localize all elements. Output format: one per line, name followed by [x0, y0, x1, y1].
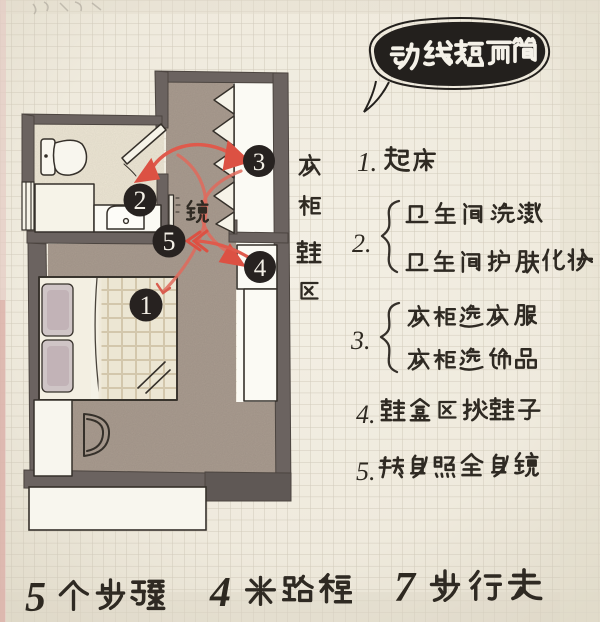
svg-text:4: 4: [254, 255, 267, 282]
svg-text:5.: 5.: [356, 457, 376, 486]
svg-text:1: 1: [140, 291, 153, 320]
svg-text:1.: 1.: [357, 147, 377, 177]
svg-text:5: 5: [163, 227, 176, 256]
svg-text:4.: 4.: [356, 400, 376, 429]
svg-text:5: 5: [25, 575, 46, 621]
svg-text:3.: 3.: [350, 326, 371, 355]
svg-text:4: 4: [209, 570, 231, 616]
svg-text:3: 3: [253, 149, 266, 176]
svg-text:7: 7: [394, 565, 417, 611]
svg-text:2: 2: [134, 186, 147, 215]
svg-text:2.: 2.: [352, 229, 372, 258]
